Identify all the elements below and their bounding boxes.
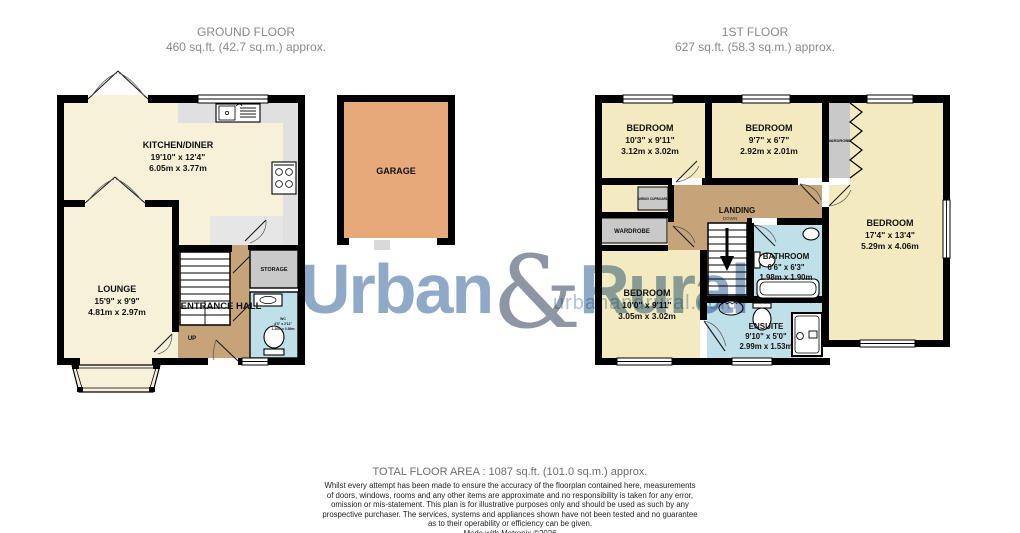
wall [238,358,242,365]
ground-floor-plan: KITCHEN/DINER 19'10" x 12'4" 6.05m x 3.7… [57,71,305,392]
bay-window [72,363,160,392]
wall [777,218,822,225]
watermark-urban: Urban [300,250,492,328]
wall [57,358,72,365]
wall [268,358,305,365]
bathroom-label-name: BATHROOM [763,252,810,261]
stairs-up [180,252,230,325]
metropix-credit: Made with Metropix ©2026 [0,529,1020,533]
wall [915,340,950,347]
hall-label: ENTRANCE HALL [181,301,262,312]
hob-icon [272,162,296,194]
airing-cupboard-label: AIRING CUPBOARD [638,197,669,201]
disclaimer-line: Whilst every attempt has been made to en… [0,481,1020,491]
wc-window [242,358,268,365]
wall [172,200,179,332]
bedroom1-label-metric: 3.12m x 3.02m [621,146,679,156]
total-floor-area: TOTAL FLOOR AREA : 1087 sq.ft. (101.0 sq… [0,466,1020,478]
footer: TOTAL FLOOR AREA : 1087 sq.ft. (101.0 sq… [0,466,1020,533]
bedroom3-window-bottom [860,340,915,347]
disclaimer-line: of doors, windows, rooms and any other i… [0,491,1020,501]
disclaimer-line: omission or mis-statement. This plan is … [0,500,1020,510]
floorplan-page: GROUND FLOOR 460 sq.ft. (42.7 sq.m.) app… [0,0,1020,533]
disclaimer-line: prospective purchaser. The services, sys… [0,510,1020,520]
bedroom3-window-right [943,200,950,258]
bedroom3-label-name: BEDROOM [867,218,914,228]
bedroom1-label-name: BEDROOM [627,123,674,133]
wall [148,95,198,103]
sink-icon [216,104,260,122]
bathroom-label-metric: 1.98m x 1.90m [760,273,813,282]
lounge-label-metric: 4.81m x 2.97m [88,307,146,317]
stairs-up-label: UP [188,336,196,342]
disclaimer: Whilst every attempt has been made to en… [0,481,1020,533]
landing-down-label: DOWN [723,216,738,221]
wall [772,358,830,365]
wall [710,178,798,185]
room-lounge [57,200,178,365]
wardrobe-strip-label: WARDROBE [827,138,851,143]
ensuite-label-name: ENSUITE [749,322,784,331]
wc-label-imperial: 4'3" x 2'11" [274,322,292,326]
bedroom4-window [617,358,672,365]
kitchen-label-imperial: 19'10" x 12'4" [151,152,206,162]
kitchen-window [198,95,268,103]
wall [595,358,617,365]
storage-top-wall [248,245,305,250]
bedroom1-label-imperial: 10'3" x 9'11" [625,135,674,145]
wall [790,95,822,103]
wall [595,178,672,185]
bedroom3-label-metric: 5.29m x 4.06m [861,241,919,251]
watermark-rural: Rural [579,250,748,328]
lounge-label-imperial: 15'9" x 9'9" [94,296,139,306]
bedroom2-label-name: BEDROOM [746,123,793,133]
storage-label: STORAGE [260,267,287,273]
kitchen-label-metric: 6.05m x 3.77m [149,163,207,173]
landing-label: LANDING [719,206,755,215]
ensuite-label-imperial: 9'10" x 5'0" [745,332,787,341]
wall [705,95,712,185]
shower-icon [792,313,822,356]
disclaimer-line: as to their operability or efficiency ca… [0,519,1020,529]
bathroom-sink-icon [803,228,819,240]
bedroom2-window [742,95,790,103]
wall [57,200,85,207]
wall [672,358,732,365]
wall [57,95,64,365]
bedroom2-label-metric: 2.92m x 2.01m [740,146,798,156]
garage-plan: GARAGE [337,95,455,250]
bedroom3-label-imperial: 17'4" x 13'4" [865,230,915,240]
wc-label-metric: 1.30m x 0.89m [272,327,295,331]
ensuite-window [732,358,772,365]
french-doors [88,71,148,99]
wall [822,207,829,347]
watermark-url: urbanandrural.com [553,292,738,315]
wall [668,185,674,222]
bedroom2-label-imperial: 9'7" x 6'7" [749,135,789,145]
bathroom-label-imperial: 6'6" x 6'3" [767,263,804,272]
wall [943,258,950,347]
wall [673,95,710,103]
wall [160,358,208,365]
kitchen-label-name: KITCHEN/DINER [143,140,214,150]
bedroom1-window [623,95,673,103]
wall [943,95,950,200]
wall [710,95,742,103]
garage-label: GARAGE [376,166,416,176]
wall [178,245,232,252]
wc-label-name: WC [280,317,286,321]
lounge-label-name: LOUNGE [98,284,137,294]
bedroom3-window-top [867,95,913,103]
wall [595,212,668,218]
